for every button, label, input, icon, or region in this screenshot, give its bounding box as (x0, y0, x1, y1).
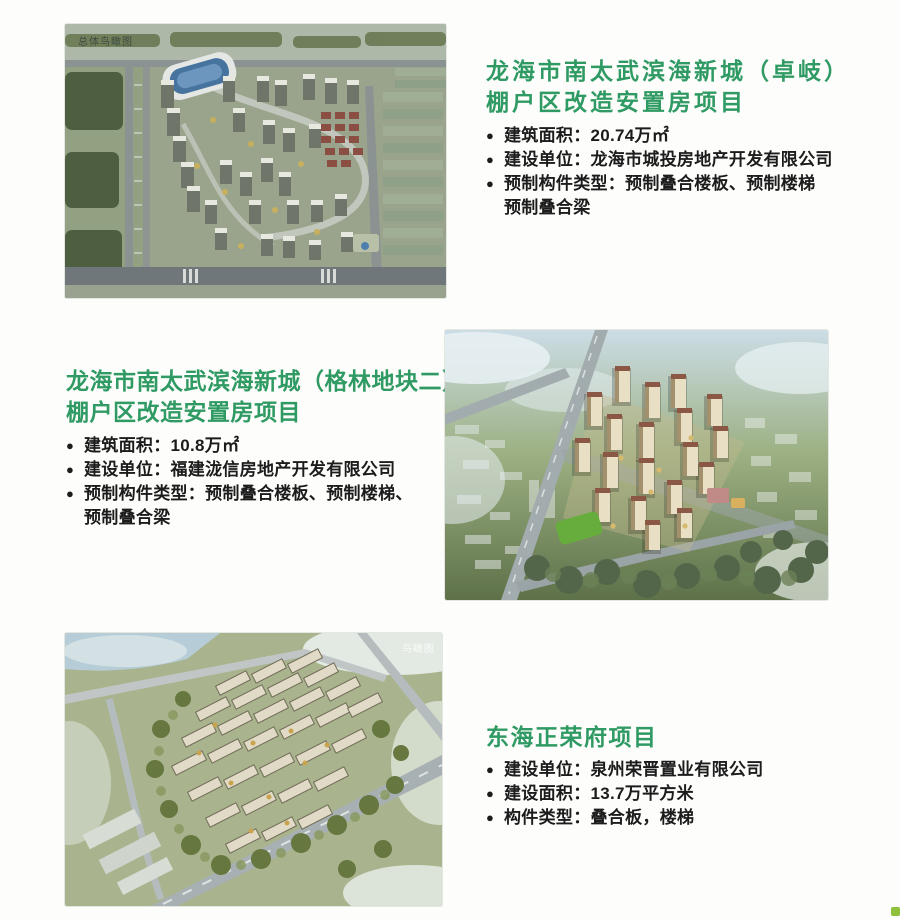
bullet-icon: ● (486, 782, 504, 806)
project-zhuoqi-info: 龙海市南太武滨海新城（卓岐） 棚户区改造安置房项目 ● 建筑面积：20.74万㎡… (486, 56, 892, 220)
spec-text: 建设单位：泉州荣晋置业有限公司 (504, 758, 764, 782)
spec-text: 预制叠合梁 (84, 506, 171, 530)
project-title: 龙海市南太武滨海新城（卓岐） 棚户区改造安置房项目 (486, 56, 892, 118)
spec-text: 建设单位：福建泷信房地产开发有限公司 (84, 458, 395, 482)
project-zhuoqi-aerial-image: 总体鸟瞰图 (65, 24, 446, 298)
aerial-image-caption: 鸟瞰图 (402, 645, 435, 655)
bullet-icon: ● (486, 806, 504, 830)
project-title: 龙海市南太武滨海新城（格林地块二） 棚户区改造安置房项目 (66, 366, 468, 428)
spec-item: ● 建设面积：13.7万平方米 (486, 782, 886, 806)
tree-blocks-left (65, 72, 123, 278)
spec-text: 建筑面积：20.74万㎡ (504, 124, 669, 148)
project-gelin-aerial-image (445, 330, 828, 600)
spec-item: ● 建设单位：福建泷信房地产开发有限公司 (66, 458, 468, 482)
spec-item: ● 建筑面积：20.74万㎡ (486, 124, 892, 148)
bullet-icon: ● (486, 172, 504, 196)
spec-item: ● 预制构件类型：预制叠合楼板、预制楼梯、 (66, 482, 468, 506)
project-title-line: 棚户区改造安置房项目 (66, 397, 468, 428)
project-title-line: 龙海市南太武滨海新城（卓岐） (486, 56, 892, 87)
project-spec-list: ● 建筑面积：20.74万㎡ ● 建设单位：龙海市城投房地产开发有限公司 ● 预… (486, 124, 892, 220)
aerial-rendering-2 (445, 330, 828, 600)
spec-item: ● 建筑面积：10.8万㎡ (66, 434, 468, 458)
clubhouse-pool (353, 234, 379, 252)
spec-text: 预制叠合梁 (504, 196, 591, 220)
spec-item: ● 建设单位：泉州荣晋置业有限公司 (486, 758, 886, 782)
bullet-icon: ● (486, 124, 504, 148)
project-spec-list: ● 建设单位：泉州荣晋置业有限公司 ● 建设面积：13.7万平方米 ● 构件类型… (486, 758, 886, 830)
spec-text: 预制构件类型：预制叠合楼板、预制楼梯 (504, 172, 815, 196)
spec-text: 构件类型：叠合板，楼梯 (504, 806, 694, 830)
bottom-road (65, 267, 446, 285)
project-gelin-info: 龙海市南太武滨海新城（格林地块二） 棚户区改造安置房项目 ● 建筑面积：10.8… (66, 366, 468, 530)
aerial-rendering-1 (65, 24, 446, 298)
project-title: 东海正荣府项目 (486, 722, 886, 753)
bullet-icon: ● (66, 458, 84, 482)
spec-item-continuation: 预制叠合梁 (66, 506, 468, 530)
spec-item: ● 构件类型：叠合板，楼梯 (486, 806, 886, 830)
spec-text: 建筑面积：10.8万㎡ (84, 434, 239, 458)
bullet-icon: ● (486, 148, 504, 172)
corner-accent-mark (891, 907, 900, 916)
spec-text: 建设面积：13.7万平方米 (504, 782, 694, 806)
aerial-image-caption: 总体鸟瞰图 (78, 38, 133, 48)
project-title-line: 棚户区改造安置房项目 (486, 87, 892, 118)
document-page: 总体鸟瞰图 龙海市南太武滨海新城（卓岐） 棚户区改造安置房项目 ● 建筑面积：2… (0, 0, 900, 919)
spec-item-continuation: 预制叠合梁 (486, 196, 892, 220)
spec-text: 预制构件类型：预制叠合楼板、预制楼梯、 (84, 482, 413, 506)
bullet-icon: ● (66, 482, 84, 506)
bullet-icon: ● (486, 758, 504, 782)
project-donghai-info: 东海正荣府项目 ● 建设单位：泉州荣晋置业有限公司 ● 建设面积：13.7万平方… (486, 722, 886, 830)
project-donghai-aerial-image: 鸟瞰图 (65, 633, 442, 906)
spec-item: ● 预制构件类型：预制叠合楼板、预制楼梯 (486, 172, 892, 196)
project-title-line: 龙海市南太武滨海新城（格林地块二） (66, 366, 468, 397)
aerial-rendering-3 (65, 633, 442, 906)
project-title-line: 东海正荣府项目 (486, 722, 886, 753)
bullet-icon: ● (66, 434, 84, 458)
spec-item: ● 建设单位：龙海市城投房地产开发有限公司 (486, 148, 892, 172)
project-spec-list: ● 建筑面积：10.8万㎡ ● 建设单位：福建泷信房地产开发有限公司 ● 预制构… (66, 434, 468, 530)
spec-text: 建设单位：龙海市城投房地产开发有限公司 (504, 148, 833, 172)
